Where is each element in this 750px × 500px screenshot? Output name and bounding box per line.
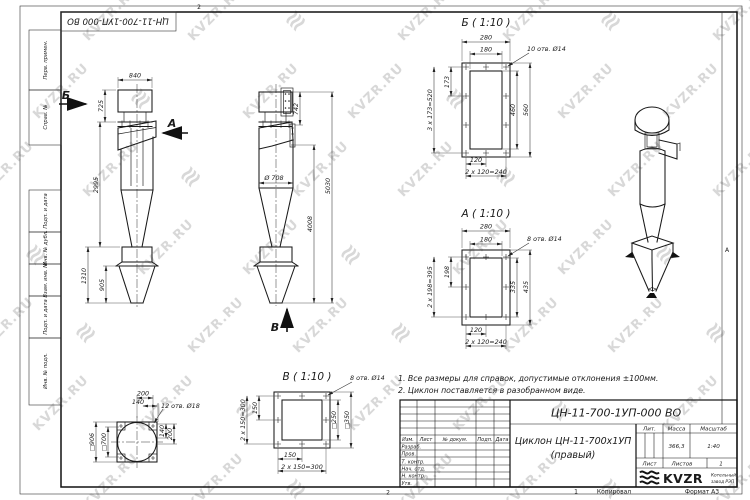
zone-letter: А bbox=[725, 247, 730, 254]
dim-a-198: 198 bbox=[443, 266, 451, 278]
dim-b-280: 280 bbox=[480, 34, 492, 42]
dim-f-200-r: 200 bbox=[166, 428, 174, 440]
dim-a-120: 120 bbox=[470, 326, 482, 334]
copy-number: 1 bbox=[574, 489, 578, 496]
dim-f-140-t: 140 bbox=[132, 398, 144, 406]
margin-label-vzam: Взам. инв. № bbox=[43, 262, 49, 297]
dim-b-560: 560 bbox=[522, 104, 530, 116]
drawing-canvas: ЦН-11-700-1УП-000 ВО 2 2 1 Копировал Фор… bbox=[0, 0, 750, 500]
dim-d708: Ø 708 bbox=[263, 174, 283, 182]
margin-label-sprav: Справ. № bbox=[43, 104, 49, 129]
dim-b-2x120: 2 х 120=240 bbox=[465, 168, 507, 176]
note-1: 1. Все размеры для справок, допустимые о… bbox=[398, 374, 658, 383]
side-view: Ø 708 В 742 4008 5030 bbox=[254, 84, 334, 334]
dim-2995: 2995 bbox=[92, 177, 100, 193]
col-podp: Подп. bbox=[477, 437, 492, 443]
dim-f-906: □906 bbox=[88, 433, 96, 451]
listov-value: 1 bbox=[719, 462, 723, 468]
massa-value: 366,3 bbox=[668, 444, 684, 450]
kvzr-logo-glyph bbox=[640, 471, 659, 483]
logo-sub1: Котельный bbox=[711, 473, 736, 479]
lit-label: Лит. bbox=[642, 427, 656, 433]
front-view: Б А 840 725 2995 1310 905 bbox=[59, 72, 188, 310]
margin-label-perv: Перв. примен. bbox=[43, 41, 49, 80]
row-prov: Пров. bbox=[402, 452, 417, 458]
margin-label-podl: Инв. № подл. bbox=[43, 353, 49, 389]
row-tkontr: Т. контр. bbox=[402, 460, 425, 466]
dim-v-150-b: 150 bbox=[284, 451, 296, 459]
dim-a-180: 180 bbox=[480, 236, 492, 244]
flange-view: 200 140 12 отв. Ø18 □906 □700 140 200 bbox=[88, 390, 200, 469]
isometric-view bbox=[625, 107, 680, 298]
view-a-title: А ( 1:10 ) bbox=[461, 208, 511, 220]
dim-b-173: 173 bbox=[443, 76, 451, 88]
kopiroval-label: Копировал bbox=[597, 489, 631, 496]
dim-b-3x173: 3 х 173=520 bbox=[426, 89, 434, 131]
part-name-line1: Циклон ЦН-11-700х1УП bbox=[515, 436, 632, 447]
dim-840: 840 bbox=[129, 72, 141, 80]
kvzr-logo-text: KVZR bbox=[663, 471, 703, 486]
dim-1310: 1310 bbox=[80, 268, 88, 284]
dim-v-350: □350 bbox=[343, 411, 351, 429]
format-label: Формат А3 bbox=[685, 489, 719, 496]
arrow-label-b: Б bbox=[62, 89, 70, 102]
dim-a-280: 280 bbox=[480, 223, 492, 231]
margin-label-podp2: Подп. и дата bbox=[43, 299, 49, 334]
row-utv: Утв. bbox=[402, 481, 413, 487]
dim-f-700: □700 bbox=[100, 433, 108, 451]
row-nkontr: Н. контр. bbox=[402, 474, 426, 480]
view-v-holes: 8 отв. Ø14 bbox=[350, 374, 385, 382]
dim-b-460: 460 bbox=[509, 104, 517, 116]
dim-5030: 5030 bbox=[324, 178, 332, 194]
logo-sub2: завод РЭП bbox=[711, 479, 735, 485]
zone-top: 2 bbox=[197, 4, 201, 11]
flange-holes: 12 отв. Ø18 bbox=[161, 402, 200, 410]
masshtab-value: 1:40 bbox=[707, 444, 720, 450]
dim-a-2x198: 2 х 198=395 bbox=[426, 266, 434, 308]
designation: ЦН-11-700-1УП-000 ВО bbox=[551, 407, 682, 420]
drawing-sheet: ≋KVZR.RUKVZR.RU≋KVZR.RUKVZR.RU≋KVZR.RUKV… bbox=[0, 0, 750, 500]
dim-4008: 4008 bbox=[306, 216, 314, 232]
view-a: А ( 1:10 ) 280 180 8 отв. Ø14 198 2 х 19… bbox=[426, 208, 562, 349]
view-a-holes: 8 отв. Ø14 bbox=[527, 235, 562, 243]
dim-v-150-l: 150 bbox=[251, 402, 259, 414]
note-2: 2. Циклон поставляется в разобранном вид… bbox=[398, 386, 586, 395]
view-v-title: В ( 1:10 ) bbox=[283, 371, 332, 383]
row-nachotd: Нач. отд. bbox=[402, 467, 426, 473]
dim-725: 725 bbox=[97, 100, 105, 112]
dim-742: 742 bbox=[292, 103, 300, 115]
arrow-label-v: В bbox=[271, 321, 279, 334]
view-v: В ( 1:10 ) 8 отв. Ø14 150 2 х 150=300 □2… bbox=[239, 371, 385, 474]
list-label: Лист bbox=[641, 462, 657, 468]
dim-f-140-r: 140 bbox=[158, 425, 166, 437]
col-data: Дата bbox=[495, 437, 509, 443]
dim-a-2x120: 2 х 120=240 bbox=[465, 338, 507, 346]
dim-f-200-t: 200 bbox=[137, 390, 149, 398]
massa-label: Масса bbox=[668, 427, 686, 433]
dim-a-335: 335 bbox=[509, 281, 517, 293]
masshtab-label: Масштаб bbox=[700, 427, 727, 433]
title-block: ЦН-11-700-1УП-000 ВО Циклон ЦН-11-700х1У… bbox=[400, 400, 737, 487]
zone-bottom: 2 bbox=[386, 490, 390, 497]
dim-a-435: 435 bbox=[522, 281, 530, 293]
notes: 1. Все размеры для справок, допустимые о… bbox=[398, 374, 658, 395]
dim-v-250: □250 bbox=[330, 411, 338, 429]
col-doc: № докум. bbox=[442, 437, 468, 443]
dim-b-180: 180 bbox=[480, 46, 492, 54]
dim-905: 905 bbox=[98, 279, 106, 291]
col-izm: Изм. bbox=[402, 437, 414, 443]
margin-label-podp1: Подп. и дата bbox=[43, 193, 49, 228]
view-b-holes: 10 отв. Ø14 bbox=[527, 45, 566, 53]
view-b-title: Б ( 1:10 ) bbox=[462, 17, 511, 29]
margin-label-dubl: Инв. № дубл. bbox=[43, 230, 49, 266]
dim-v-2x150-l: 2 х 150=300 bbox=[239, 399, 247, 441]
view-b: Б ( 1:10 ) 280 180 10 отв. Ø14 173 3 х 1… bbox=[426, 17, 566, 179]
row-razrab: Разраб. bbox=[402, 445, 422, 451]
top-stamp-text: ЦН-11-700-1УП-000 ВО bbox=[67, 16, 169, 26]
col-list: Лист bbox=[419, 437, 434, 443]
left-margin-boxes: Перв. примен. Справ. № Подп. и дата Инв.… bbox=[29, 30, 61, 405]
dim-v-2x150-b: 2 х 150=300 bbox=[281, 463, 323, 471]
part-name-line2: (правый) bbox=[551, 450, 596, 461]
listov-label: Листов bbox=[671, 462, 693, 468]
arrow-label-a: А bbox=[167, 117, 177, 130]
dim-b-120: 120 bbox=[470, 156, 482, 164]
